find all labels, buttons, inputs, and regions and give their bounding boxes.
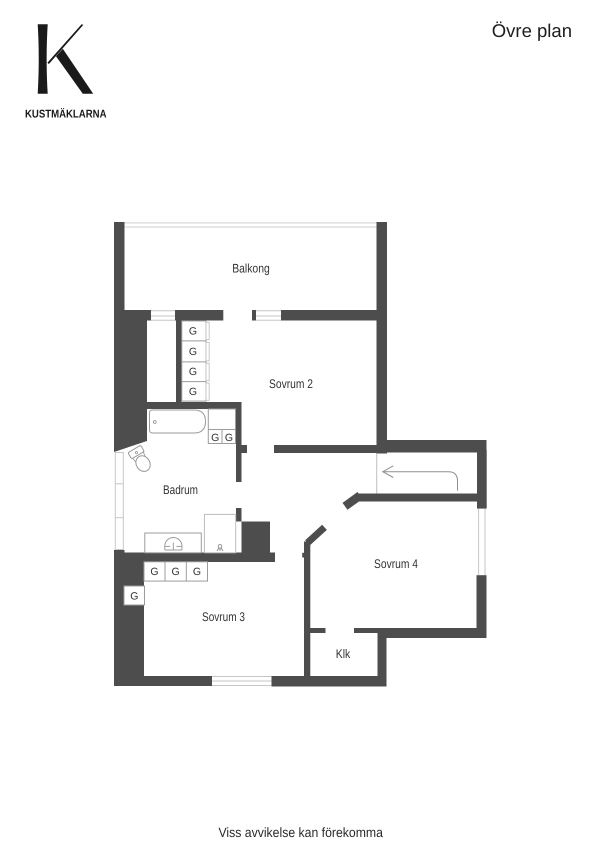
svg-text:G: G [150, 566, 158, 578]
svg-text:G: G [211, 432, 219, 444]
svg-text:Balkong: Balkong [232, 262, 270, 276]
svg-text:G: G [172, 566, 180, 578]
svg-text:G: G [189, 325, 197, 337]
svg-text:Klk: Klk [336, 647, 351, 661]
svg-text:G: G [193, 566, 201, 578]
svg-text:Sovrum 2: Sovrum 2 [269, 377, 313, 391]
svg-text:G: G [225, 432, 233, 444]
svg-text:Sovrum 4: Sovrum 4 [374, 557, 418, 571]
svg-text:G: G [130, 591, 138, 603]
svg-text:Viss avvikelse kan förekomma: Viss avvikelse kan förekomma [218, 825, 383, 840]
svg-text:Övre plan: Övre plan [492, 20, 572, 41]
svg-text:KUSTMÄKLARNA: KUSTMÄKLARNA [25, 108, 107, 121]
svg-text:G: G [189, 386, 197, 398]
svg-text:G: G [189, 346, 197, 358]
svg-text:Badrum: Badrum [163, 483, 198, 497]
svg-text:G: G [189, 366, 197, 378]
svg-text:Sovrum 3: Sovrum 3 [202, 610, 245, 624]
